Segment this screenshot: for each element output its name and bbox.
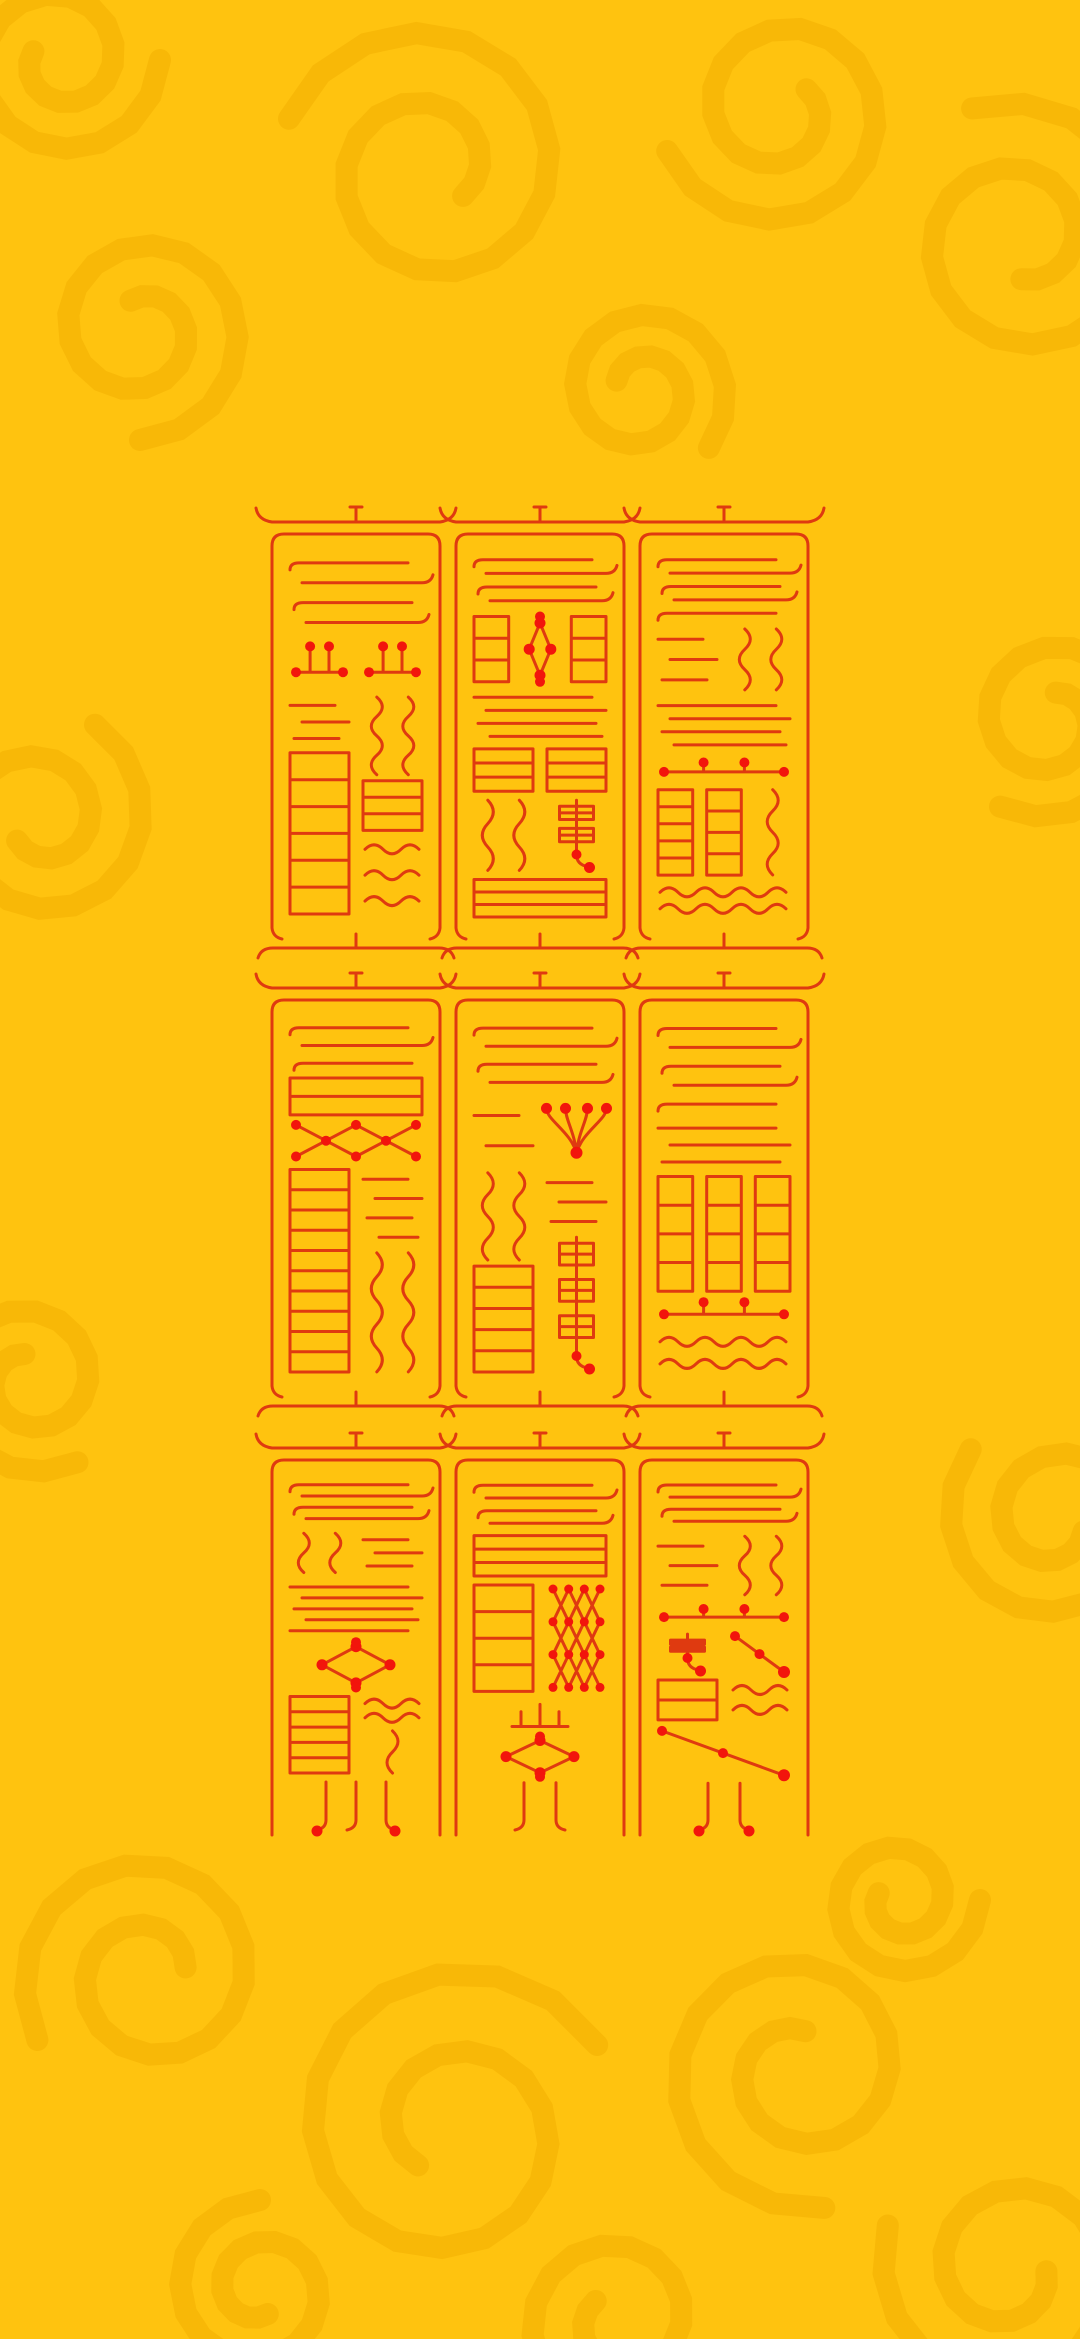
talisman-dot [291,1120,301,1130]
talisman-dot [718,1748,728,1758]
talisman-dot [385,1659,396,1670]
talisman-dot [535,1772,545,1782]
talisman-dot [580,1683,589,1692]
talisman-dot [564,1585,573,1594]
talisman-dot [535,612,545,622]
talisman-strokes [624,507,824,958]
talisman-dot [699,1297,709,1307]
talisman-dot [699,758,709,768]
swirl-motif [951,1449,1080,1611]
talisman-strokes [624,973,824,1416]
talisman-dot [683,1653,693,1663]
talisman-dot [779,767,789,777]
talisman-dot [351,1120,361,1130]
talisman-dot [596,1650,605,1659]
talisman-dot [351,1637,361,1647]
talisman-dot [291,667,301,677]
talisman-dot [730,1631,740,1641]
talisman-dot [560,1103,571,1114]
talisman-r2-c2 [440,973,640,1416]
swirl-motif [0,725,141,909]
talisman-strokes [624,1433,824,1835]
talisman-dot [778,1666,790,1678]
swirl-motif [667,29,875,220]
talisman-r1-c3 [624,507,824,958]
talisman-dot [601,1103,612,1114]
swirl-motif [679,1965,889,2208]
talisman-strokes [440,507,640,958]
talisman-dot [541,1103,552,1114]
talisman-dot [739,758,749,768]
talisman-dot [755,1649,765,1659]
talisman-dot [351,1683,361,1693]
talisman-dot [411,1152,421,1162]
swirl-motif [884,2188,1080,2339]
talisman-dot [580,1585,589,1594]
talisman-dot [659,1309,669,1319]
talisman-dot [411,1120,421,1130]
talisman-dot [659,767,669,777]
talisman-dot [351,1152,361,1162]
talisman-dot [778,1769,790,1781]
swirl-motif [533,2246,724,2339]
talisman-strokes [256,1433,456,1835]
talisman-dot [779,1309,789,1319]
talisman-r2-c3 [624,973,824,1416]
talisman-dot [695,1666,706,1677]
talisman-strokes [256,973,456,1416]
talisman-dot [572,1351,582,1361]
talisman-r3-c3 [624,1433,824,1837]
talisman-dot [321,1136,331,1146]
talisman-dot [397,641,407,651]
swirl-motif [932,104,1080,345]
talisman-r2-c1 [256,973,456,1416]
talisman-dot [535,677,545,687]
talisman-dot [291,1152,301,1162]
talisman-r3-c1 [256,1433,456,1837]
talisman-dot [584,862,595,873]
talisman-art [0,0,1080,2339]
talisman-strokes [440,973,640,1416]
talisman-dot [524,644,535,655]
talisman-dot [535,1732,545,1742]
talisman-dot [596,1585,605,1594]
talisman-dot [501,1751,512,1762]
talisman-dot [564,1683,573,1692]
swirl-motif [0,0,160,149]
talisman-dot [564,1617,573,1626]
talisman-dot [584,1364,595,1375]
talisman-r1-c1 [256,507,456,958]
talisman-dot [569,1751,580,1762]
talisman-dot [596,1683,605,1692]
talisman-dot [411,667,421,677]
talisman-dot [381,1136,391,1146]
swirl-motif [313,1975,597,2248]
talisman-wallpaper [0,0,1080,2339]
talisman-dot [739,1297,749,1307]
talisman-dot [378,641,388,651]
talisman-dot [659,1612,669,1622]
talisman-dot [545,644,556,655]
talisman-r3-c2 [440,1433,640,1835]
swirl-motif [575,315,725,448]
talisman-dot [312,1826,323,1837]
talisman-dot [549,1585,558,1594]
swirl-motif [289,33,549,271]
talisman-dot [596,1617,605,1626]
talisman-dot [739,1604,749,1614]
talisman-dot [580,1650,589,1659]
talisman-dot [564,1650,573,1659]
talisman-dot [549,1617,558,1626]
talisman-dot [694,1826,705,1837]
swirl-motif [25,1866,244,2055]
talisman-dot [779,1612,789,1622]
swirl-motif [180,2200,319,2339]
talisman-dot [657,1726,667,1736]
talisman-dot [582,1103,593,1114]
talisman-dot [572,850,582,860]
talisman-dot [390,1826,401,1837]
talisman-dot [324,641,334,651]
talisman-dot [580,1617,589,1626]
talisman-dot [549,1650,558,1659]
background-swirl-pattern [0,0,1080,2339]
talisman-dot [338,667,348,677]
swirl-motif [838,1848,980,1971]
talisman-dot [317,1659,328,1670]
talisman-dot [571,1147,583,1159]
talisman-dot [305,641,315,651]
swirl-motif [68,245,237,440]
talisman-dot [364,667,374,677]
swirl-motif [989,648,1080,816]
talisman-dot [549,1683,558,1692]
talisman-dot [744,1826,755,1837]
talisman-strokes [256,507,456,958]
talisman-dot [699,1604,709,1614]
swirl-motif [0,1312,88,1472]
talisman-r1-c2 [440,507,640,958]
